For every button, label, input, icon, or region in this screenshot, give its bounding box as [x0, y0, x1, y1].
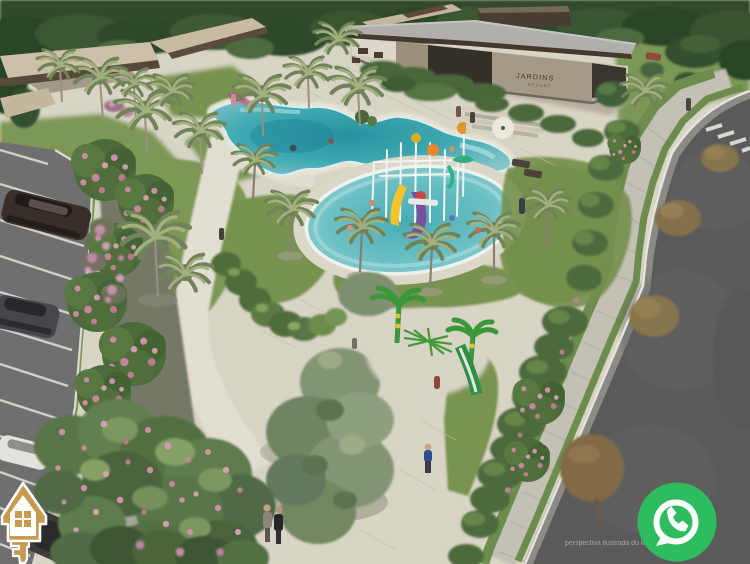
svg-text:perspectiva ilustrada do local: perspectiva ilustrada do local — [565, 540, 656, 547]
